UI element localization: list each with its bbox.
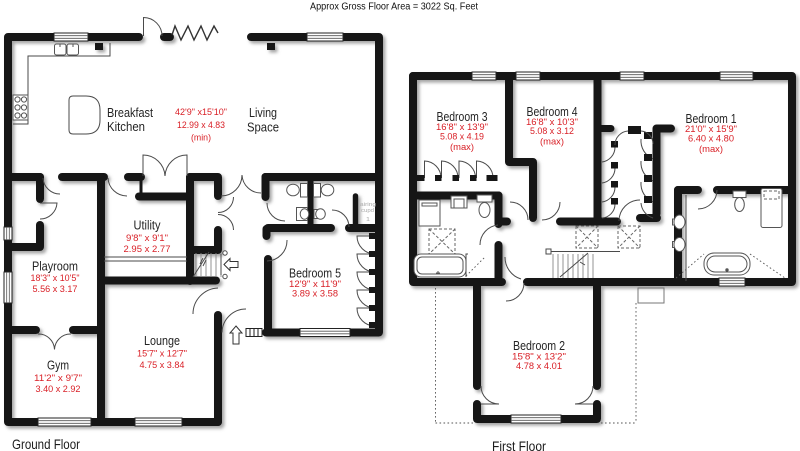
svg-text:Approx Gross Floor Area = 3: Approx Gross Floor Area = 3022 Sq. Feet: [310, 2, 478, 13]
svg-text:3.89 x 3.58: 3.89 x 3.58: [292, 289, 338, 299]
svg-text:4.75 x 3.84: 4.75 x 3.84: [140, 360, 185, 370]
svg-text:42'9" x15'10": 42'9" x15'10": [175, 107, 227, 117]
svg-text:Ground Floor: Ground Floor: [12, 437, 80, 451]
svg-text:Lounge: Lounge: [144, 334, 180, 348]
svg-text:1: 1: [366, 217, 370, 223]
svg-text:Kitchen: Kitchen: [107, 120, 145, 134]
svg-text:12'9" x 11'9": 12'9" x 11'9": [289, 279, 341, 289]
svg-text:cupd: cupd: [361, 208, 374, 214]
svg-text:9'8" x 9'1": 9'8" x 9'1": [126, 233, 168, 243]
svg-text:2.95 x 2.77: 2.95 x 2.77: [124, 244, 171, 254]
svg-text:Utility: Utility: [134, 219, 162, 233]
svg-text:21'0" x 15'9": 21'0" x 15'9": [685, 124, 737, 134]
svg-text:15'7" x 12'7": 15'7" x 12'7": [137, 349, 187, 359]
svg-text:15'8" x 13'2": 15'8" x 13'2": [512, 352, 566, 362]
svg-text:(max): (max): [699, 144, 723, 154]
svg-text:5.56 x 3.17: 5.56 x 3.17: [33, 284, 78, 294]
svg-text:Living: Living: [249, 106, 277, 120]
svg-text:3.40 x 2.92: 3.40 x 2.92: [36, 384, 81, 394]
svg-text:(min): (min): [191, 133, 211, 143]
svg-text:First Floor: First Floor: [492, 439, 546, 451]
svg-text:Breakfast: Breakfast: [107, 106, 153, 120]
svg-text:12.99 x 4.83: 12.99 x 4.83: [177, 120, 225, 130]
svg-text:Space: Space: [247, 121, 279, 135]
svg-text:(max): (max): [450, 142, 474, 152]
svg-text:4.78 x 4.01: 4.78 x 4.01: [516, 361, 562, 371]
svg-text:5.08 x 3.12: 5.08 x 3.12: [530, 126, 574, 136]
svg-text:5.08 x 4.19: 5.08 x 4.19: [440, 132, 484, 142]
svg-text:(max): (max): [540, 137, 564, 147]
svg-text:Gym: Gym: [47, 359, 69, 373]
svg-text:6.40 x 4.80: 6.40 x 4.80: [688, 134, 734, 144]
svg-text:16'8" x 13'9": 16'8" x 13'9": [436, 122, 488, 132]
svg-text:18'3" x 10'5": 18'3" x 10'5": [31, 273, 80, 283]
svg-text:11'2" x 9'7": 11'2" x 9'7": [34, 373, 82, 383]
svg-text:Playroom: Playroom: [32, 260, 78, 274]
